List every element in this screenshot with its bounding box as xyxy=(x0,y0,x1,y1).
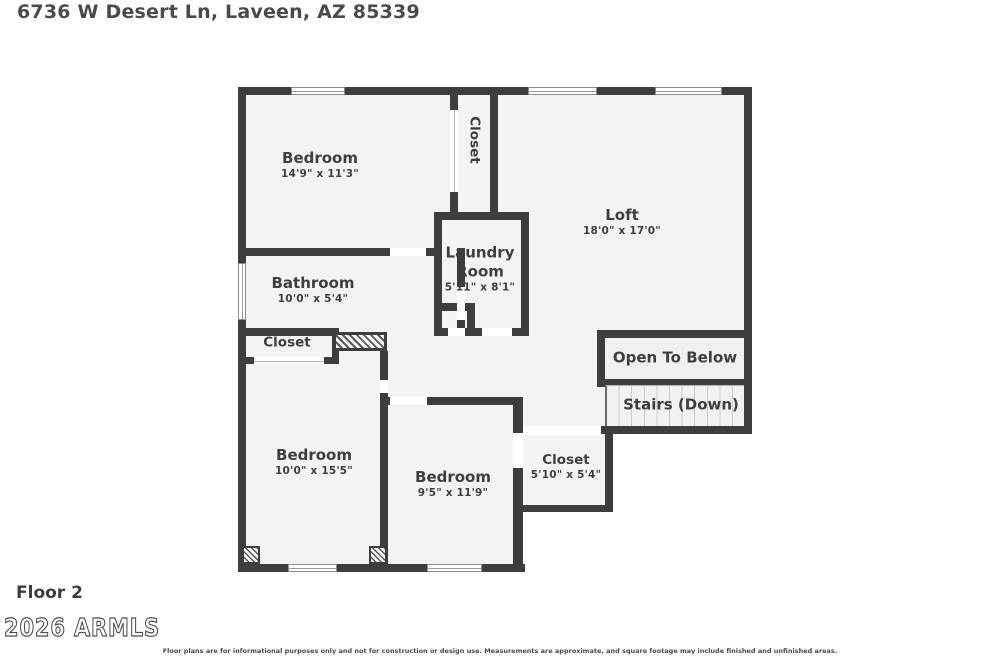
wall-closet-ml-bottom-b xyxy=(324,357,339,364)
room-name: Bedroom xyxy=(275,446,353,465)
wall-bedroom-tl-bottom-a xyxy=(238,248,390,256)
door-closet-top xyxy=(450,110,458,192)
room-dims: 14'9" x 11'3" xyxy=(281,168,359,181)
wall-closet-top-right xyxy=(490,87,498,220)
window-loft-right xyxy=(655,87,722,95)
door-bedroom-bl xyxy=(380,380,388,393)
wall-laundry-bottom-c xyxy=(512,328,529,336)
room-dims: 10'0" x 15'5" xyxy=(275,465,353,478)
room-dims: 18'0" x 17'0" xyxy=(583,225,661,238)
page-title: 6736 W Desert Ln, Laveen, AZ 85339 xyxy=(17,1,420,23)
room-name: Closet xyxy=(466,116,483,163)
room-dims: 9'5" x 11'9" xyxy=(415,487,491,500)
door-bedroom-tl xyxy=(390,248,426,256)
wall-closet-ml-bottom-a xyxy=(238,357,254,364)
wall-laundry-left xyxy=(434,212,442,336)
wall-laundry-bottom-b xyxy=(465,328,482,336)
floor-plan: Bedroom 14'9" x 11'3" Closet Loft 18'0" … xyxy=(238,85,752,572)
wall-bedroom-bm-top-a xyxy=(382,397,390,405)
room-name: Open To Below xyxy=(613,349,737,368)
door-laundry-nook xyxy=(448,328,465,336)
room-label-bedroom-bl: Bedroom 10'0" x 15'5" xyxy=(275,446,353,478)
room-label-closet-top: Closet xyxy=(466,116,483,163)
wall-closet-br-bottom xyxy=(513,505,613,512)
room-name: Stairs (Down) xyxy=(623,396,739,415)
wall-bedroom-bm-top-b xyxy=(427,397,523,405)
floor-number-label: Floor 2 xyxy=(16,583,83,603)
room-label-bedroom-tl: Bedroom 14'9" x 11'3" xyxy=(281,149,359,181)
window-bedroom-bl xyxy=(288,564,337,572)
floor-plan-page: { "header": { "address": "6736 W Desert … xyxy=(0,0,1000,667)
wall-closet-br-right xyxy=(605,429,613,512)
window-bedroom-bm xyxy=(427,564,482,572)
disclaimer-text: Floor plans are for informational purpos… xyxy=(0,647,1000,655)
room-label-closet-br: Closet 5'10" x 5'4" xyxy=(531,452,601,482)
room-dims: 5'10" x 5'4" xyxy=(531,469,601,482)
room-name: Bathroom xyxy=(271,274,354,293)
hatch-post-middle xyxy=(369,546,387,564)
window-bedroom-tl xyxy=(291,87,345,95)
hatch-chase xyxy=(333,332,387,351)
room-label-closet-ml: Closet xyxy=(263,335,310,352)
wall-laundry-bottom-a xyxy=(434,328,448,336)
window-bathroom xyxy=(238,263,246,320)
room-label-open-to-below: Open To Below xyxy=(613,349,737,368)
hatch-post-left xyxy=(242,546,260,564)
room-label-bedroom-bm: Bedroom 9'5" x 11'9" xyxy=(415,468,491,500)
wall-laundry-right xyxy=(521,212,529,336)
wall-closet-top-left-a xyxy=(450,87,458,110)
room-dims: 10'0" x 5'4" xyxy=(271,293,354,306)
wall-bedroom-divider-a xyxy=(380,351,388,380)
door-closet-br xyxy=(513,433,523,468)
room-name: Closet xyxy=(531,452,601,469)
armls-watermark: 2026 ARMLS xyxy=(4,613,160,642)
door-closet-ml xyxy=(254,357,324,364)
room-label-laundry: Laundry Room 5'11" x 8'1" xyxy=(442,244,518,295)
room-name: Loft xyxy=(583,206,661,225)
wall-laundry-top xyxy=(434,212,529,220)
wall-bedroom-bm-right-lower xyxy=(513,468,523,572)
room-name: Closet xyxy=(263,335,310,352)
room-name: Laundry Room xyxy=(442,244,518,282)
room-name: Bedroom xyxy=(281,149,359,168)
room-label-stairs: Stairs (Down) xyxy=(623,396,739,415)
window-loft-left xyxy=(528,87,597,95)
room-label-bathroom: Bathroom 10'0" x 5'4" xyxy=(271,274,354,306)
room-label-loft: Loft 18'0" x 17'0" xyxy=(583,206,661,238)
door-bedroom-bm xyxy=(390,397,427,405)
door-laundry xyxy=(482,328,512,336)
room-dims: 5'11" x 8'1" xyxy=(442,281,518,294)
wall-stairs-bottom xyxy=(601,426,752,434)
room-name: Bedroom xyxy=(415,468,491,487)
